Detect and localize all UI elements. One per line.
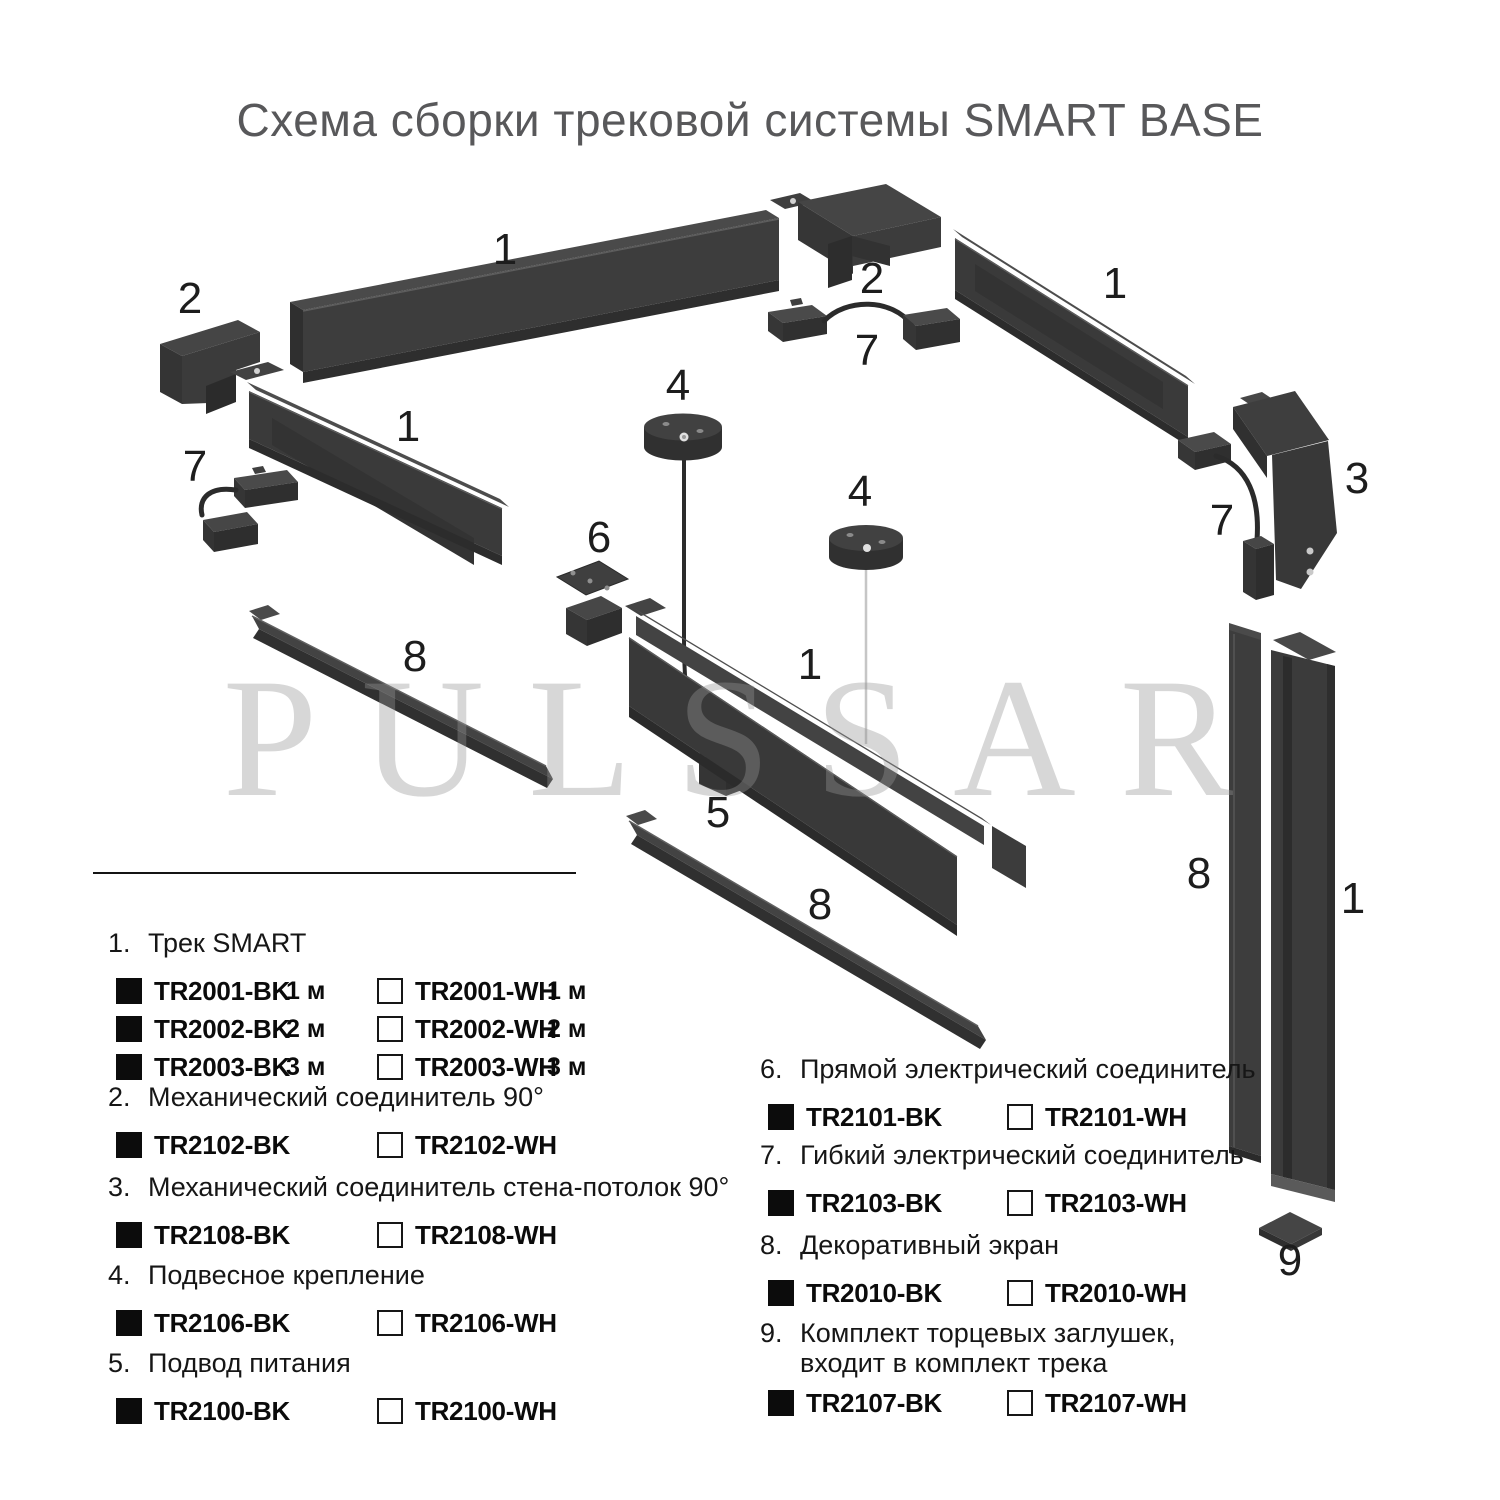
part-label-17: 8 (1187, 852, 1211, 896)
product-code: TR2102-WH (415, 1130, 535, 1161)
legend-row: TR2001-BK1 м TR2001-WH1 м (116, 976, 586, 1006)
legend-section-label: Подвесное крепление (148, 1260, 425, 1290)
legend-section-suspension: 4.Подвесное крепление TR2106-BK TR2106-W… (108, 1260, 535, 1346)
legend-section-straight-connector: 6.Прямой электрический соединитель TR210… (760, 1054, 1256, 1140)
legend-row: TR2010-BK TR2010-WH (768, 1278, 1246, 1308)
product-size: 3 м (547, 1053, 586, 1082)
swatch-white (1007, 1390, 1033, 1416)
legend-section-track: 1.Трек SMART TR2001-BK1 м TR2001-WH1 м T… (108, 928, 586, 1090)
legend-section-label: Механический соединитель 90° (148, 1082, 544, 1112)
part-label-7: 1 (1103, 262, 1127, 306)
swatch-black (768, 1390, 794, 1416)
product-code: TR2103-WH (1045, 1188, 1165, 1219)
swatch-black (768, 1190, 794, 1216)
part-label-2: 2 (178, 277, 202, 321)
product-code: TR2101-BK (806, 1102, 926, 1133)
legend-row: TR2100-BK TR2100-WH (116, 1396, 535, 1426)
swatch-white (377, 978, 403, 1004)
legend-section-number: 9. (760, 1318, 790, 1348)
product-code: TR2108-WH (415, 1220, 535, 1251)
legend-section-screen: 8.Декоративный экран TR2010-BK TR2010-WH (760, 1230, 1246, 1316)
legend-row: TR2101-BK TR2101-WH (768, 1102, 1256, 1132)
product-code: TR2002-WH (415, 1014, 535, 1045)
swatch-black (116, 1132, 142, 1158)
product-code: TR2003-WH (415, 1052, 535, 1083)
legend-row: TR2107-BK TR2107-WH (768, 1388, 1246, 1418)
legend-section-power: 5.Подвод питания TR2100-BK TR2100-WH (108, 1348, 535, 1434)
product-code: TR2103-BK (806, 1188, 926, 1219)
swatch-black (116, 1222, 142, 1248)
swatch-white (1007, 1104, 1033, 1130)
product-code: TR2106-BK (154, 1308, 274, 1339)
swatch-black (116, 1054, 142, 1080)
product-code: TR2107-WH (1045, 1388, 1165, 1419)
swatch-black (116, 978, 142, 1004)
part-label-8: 3 (1345, 457, 1369, 501)
legend-section-number: 4. (108, 1260, 138, 1290)
legend-row: TR2102-BK TR2102-WH (116, 1130, 544, 1160)
legend-row: TR2002-BK2 м TR2002-WH2 м (116, 1014, 586, 1044)
legend-section-label: Прямой электрический соединитель (800, 1054, 1256, 1084)
legend-section-label-line2: входит в комплект трека (800, 1348, 1246, 1378)
swatch-white (377, 1054, 403, 1080)
product-code: TR2102-BK (154, 1130, 274, 1161)
product-size: 2 м (286, 1015, 325, 1044)
legend-section-number: 5. (108, 1348, 138, 1378)
legend-section-number: 7. (760, 1140, 790, 1170)
legend-section-label: Трек SMART (148, 928, 306, 958)
legend-section-label: Подвод питания (148, 1348, 351, 1378)
legend-section-label: Декоративный экран (800, 1230, 1059, 1260)
legend-row: TR2003-BK3 м TR2003-WH3 м (116, 1052, 586, 1082)
part-label-3: 1 (396, 405, 420, 449)
swatch-black (116, 1398, 142, 1424)
part-label-12: 6 (587, 516, 611, 560)
swatch-white (377, 1398, 403, 1424)
part-label-11: 4 (848, 470, 872, 514)
legend-section-number: 1. (108, 928, 138, 958)
legend-section-number: 2. (108, 1082, 138, 1112)
ceiling-mount-2 (829, 525, 903, 744)
product-code: TR2107-BK (806, 1388, 926, 1419)
legend-row: TR2106-BK TR2106-WH (116, 1308, 535, 1338)
swatch-white (1007, 1190, 1033, 1216)
product-code: TR2101-WH (1045, 1102, 1165, 1133)
part-label-19: 9 (1278, 1239, 1302, 1283)
product-code: TR2100-WH (415, 1396, 535, 1427)
swatch-black (116, 1310, 142, 1336)
part-label-9: 7 (1210, 499, 1234, 543)
flex-connector-left (201, 466, 298, 552)
product-code: TR2001-WH (415, 976, 535, 1007)
part-label-10: 4 (666, 364, 690, 408)
product-code: TR2002-BK (154, 1014, 274, 1045)
legend-section-wall-ceiling: 3.Механический соединитель стена-потолок… (108, 1172, 729, 1258)
part-label-4: 7 (183, 445, 207, 489)
legend-section-end-caps: 9.Комплект торцевых заглушек, входит в к… (760, 1318, 1246, 1426)
swatch-black (768, 1280, 794, 1306)
corner-connector-top (770, 184, 941, 288)
product-size: 2 м (547, 1015, 586, 1044)
legend-section-label: Комплект торцевых заглушек, (800, 1318, 1176, 1348)
swatch-white (377, 1310, 403, 1336)
swatch-white (377, 1222, 403, 1248)
legend-section-label: Механический соединитель стена-потолок 9… (148, 1172, 729, 1202)
legend-section-number: 3. (108, 1172, 138, 1202)
swatch-white (377, 1016, 403, 1042)
assembly-scheme-page: Схема сборки трековой системы SMART BASE (0, 0, 1500, 1500)
track-top-right (953, 229, 1195, 446)
swatch-white (377, 1132, 403, 1158)
product-code: TR2003-BK (154, 1052, 274, 1083)
track-top-left (290, 210, 779, 383)
legend-section-number: 6. (760, 1054, 790, 1084)
product-code: TR2106-WH (415, 1308, 535, 1339)
legend-separator (93, 872, 576, 874)
part-label-13: 1 (798, 643, 822, 687)
product-size: 3 м (286, 1053, 325, 1082)
part-label-14: 5 (706, 791, 730, 835)
product-code: TR2100-BK (154, 1396, 274, 1427)
part-label-6: 7 (855, 329, 879, 373)
part-label-16: 8 (808, 883, 832, 927)
legend-row: TR2108-BK TR2108-WH (116, 1220, 729, 1250)
product-size: 1 м (547, 977, 586, 1006)
swatch-white (1007, 1280, 1033, 1306)
part-label-15: 8 (403, 635, 427, 679)
swatch-black (768, 1104, 794, 1130)
straight-connector (557, 561, 628, 646)
product-code: TR2010-WH (1045, 1278, 1165, 1309)
part-label-5: 2 (860, 257, 884, 301)
product-code: TR2108-BK (154, 1220, 274, 1251)
legend-section-label: Гибкий электрический соединитель (800, 1140, 1244, 1170)
product-code: TR2010-BK (806, 1278, 926, 1309)
swatch-black (116, 1016, 142, 1042)
legend-section-flex-connector: 7.Гибкий электрический соединитель TR210… (760, 1140, 1246, 1226)
product-size: 1 м (286, 977, 325, 1006)
legend-section-number: 8. (760, 1230, 790, 1260)
track-right (1271, 632, 1336, 1202)
legend-section-corner-90: 2.Механический соединитель 90° TR2102-BK… (108, 1082, 544, 1168)
legend-row: TR2103-BK TR2103-WH (768, 1188, 1246, 1218)
product-code: TR2001-BK (154, 976, 274, 1007)
part-label-18: 1 (1341, 877, 1365, 921)
part-label-1: 1 (493, 228, 517, 272)
screen-left (249, 605, 553, 788)
